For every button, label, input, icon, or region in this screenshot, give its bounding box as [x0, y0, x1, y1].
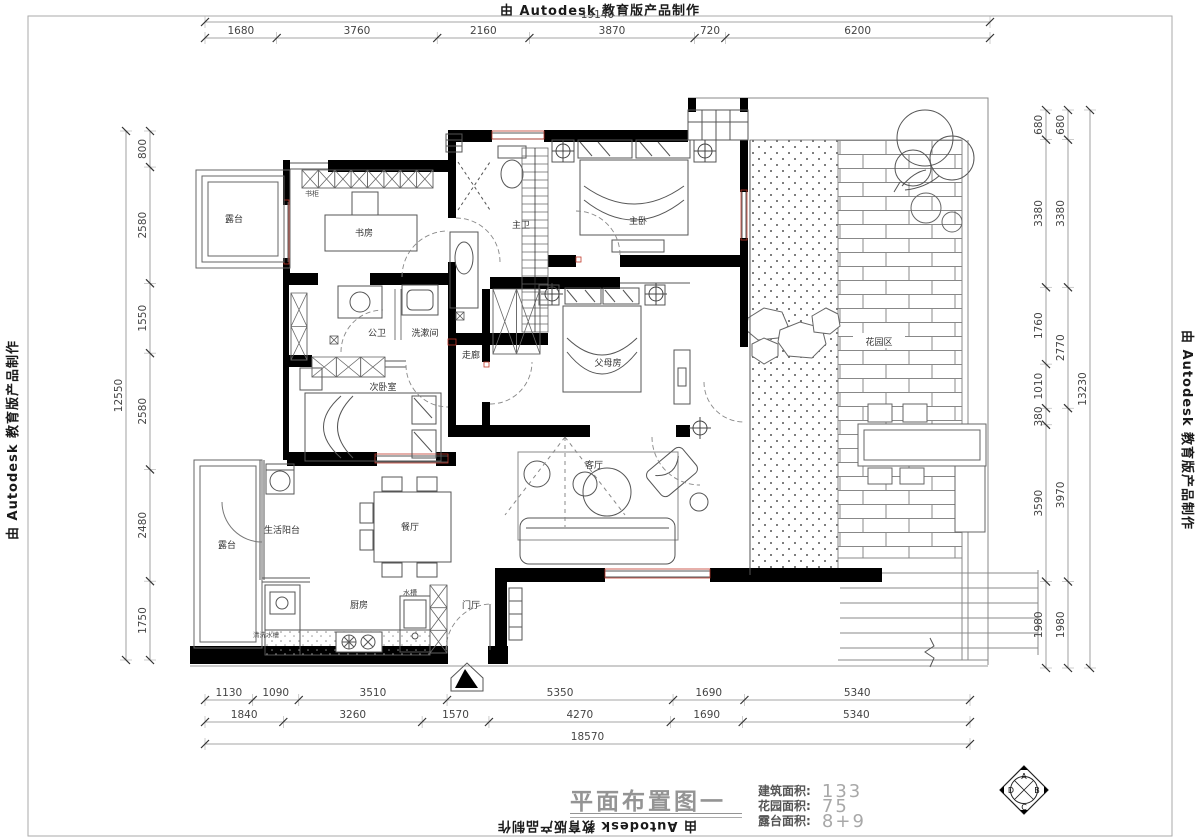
- garden-layer: [190, 98, 1038, 667]
- title-underline-2: [570, 817, 742, 818]
- dim-text: 4270: [566, 709, 593, 721]
- room-label-entry: 门厅: [462, 599, 480, 611]
- room-label-second-bedroom: 次卧室: [369, 381, 396, 393]
- room-label-washroom: 洗漱间: [411, 327, 438, 339]
- dim-text: 2480: [137, 512, 149, 539]
- dim-chain: 80025801550258024801750: [137, 127, 156, 664]
- logo-letter-c: C: [1021, 803, 1027, 812]
- dim-text: 19140: [581, 9, 614, 21]
- area-label-terrace: 露台面积:: [758, 812, 811, 829]
- drawing-title: 平面布置图一: [570, 782, 726, 816]
- dim-text: 1840: [231, 709, 258, 721]
- dim-text: 800: [137, 139, 149, 159]
- room-label-living-room: 客厅: [585, 459, 603, 471]
- room-label-study: 书房: [355, 227, 373, 239]
- break-symbol: [925, 638, 934, 667]
- room-label-service-balcony: 生活阳台: [264, 524, 300, 536]
- room-label-dining-room: 餐厅: [401, 521, 419, 533]
- room-label-sink: 水槽: [403, 588, 417, 597]
- room-label-public-bath: 公卫: [368, 328, 386, 339]
- dim-text: 1130: [215, 687, 242, 699]
- dim-text: 5340: [843, 709, 870, 721]
- dim-text: 380: [1033, 406, 1045, 426]
- terraces: [194, 170, 290, 648]
- room-label-wash-counter: 清洗水槽: [253, 630, 280, 639]
- windows-layer: [260, 110, 750, 582]
- room-label-bookcase: 书柜: [305, 189, 319, 198]
- dim-text: 1760: [1033, 312, 1045, 339]
- room-label-terrace-top: 露台: [225, 213, 243, 225]
- dim-text: 6200: [844, 25, 871, 37]
- dim-text: 12550: [113, 379, 125, 412]
- title-block: 平面布置图一 建筑面积: 133 花园面积: 75 露台面积: 8+9: [570, 780, 990, 838]
- dim-text: 1010: [1033, 373, 1045, 400]
- dim-text: 5350: [547, 687, 574, 699]
- floorplan-drawing: 1914016803760216038707206200125508002580…: [0, 0, 1200, 840]
- dim-text: 3380: [1055, 200, 1067, 227]
- dim-text: 13230: [1077, 372, 1089, 405]
- room-label-terrace-bottom: 露台: [218, 539, 236, 551]
- room-label-parents-room: 父母房: [594, 357, 621, 369]
- dim-text: 3510: [360, 687, 387, 699]
- dim-text: 1980: [1033, 611, 1045, 638]
- dim-text: 3970: [1055, 482, 1067, 509]
- room-label-corridor: 走廊: [462, 349, 480, 361]
- dim-text: 3760: [344, 25, 371, 37]
- dim-text: 2770: [1055, 334, 1067, 361]
- dim-text: 1680: [227, 25, 254, 37]
- dim-text: 2160: [470, 25, 497, 37]
- cad-sheet: 由 Autodesk 教育版产品制作 由 Autodesk 教育版产品制作 由 …: [0, 0, 1200, 840]
- title-underline: [570, 813, 742, 814]
- dim-chain: 18570: [201, 731, 974, 750]
- dim-text: 18570: [571, 731, 604, 743]
- dim-text: 1690: [693, 709, 720, 721]
- dim-chain: 16803760216038707206200: [201, 25, 994, 44]
- area-value-terrace: 8+9: [822, 815, 866, 828]
- dim-text: 680: [1033, 115, 1045, 135]
- dim-text: 1750: [137, 607, 149, 634]
- dim-chain: 19140: [201, 9, 994, 28]
- dim-text: 3590: [1033, 490, 1045, 517]
- dim-text: 3380: [1033, 200, 1045, 227]
- dim-text: 1090: [262, 687, 289, 699]
- dim-text: 3870: [599, 25, 626, 37]
- dim-chain: 12550: [113, 127, 132, 664]
- dim-text: 1690: [695, 687, 722, 699]
- room-label-kitchen: 厨房: [350, 599, 368, 611]
- dim-text: 680: [1055, 115, 1067, 135]
- logo-letter-d: D: [1008, 786, 1014, 795]
- ceiling-lights: [330, 140, 716, 439]
- room-label-garden: 花园区: [865, 336, 892, 348]
- dim-text: 1550: [137, 305, 149, 332]
- dim-text: 2580: [137, 212, 149, 239]
- dim-chain: 68033801760101038035901980: [1033, 106, 1052, 672]
- dim-text: 3260: [339, 709, 366, 721]
- dim-chain: 13230: [1077, 106, 1096, 672]
- room-label-master-bath: 主卫: [512, 219, 530, 231]
- dim-chain: 184032601570427016905340: [201, 709, 974, 728]
- room-label-master-bedroom: 主卧: [629, 215, 647, 227]
- dim-chain: 6803380277039701980: [1055, 106, 1074, 672]
- logo: A B C D: [1000, 766, 1048, 814]
- dim-text: 1570: [442, 709, 469, 721]
- dim-text: 5340: [844, 687, 871, 699]
- logo-letter-a: A: [1021, 772, 1027, 781]
- dim-text: 1980: [1055, 611, 1067, 638]
- dim-chain: 113010903510535016905340: [201, 687, 974, 706]
- dim-text: 2580: [137, 398, 149, 425]
- dim-text: 720: [700, 25, 720, 37]
- logo-letter-b: B: [1034, 786, 1040, 795]
